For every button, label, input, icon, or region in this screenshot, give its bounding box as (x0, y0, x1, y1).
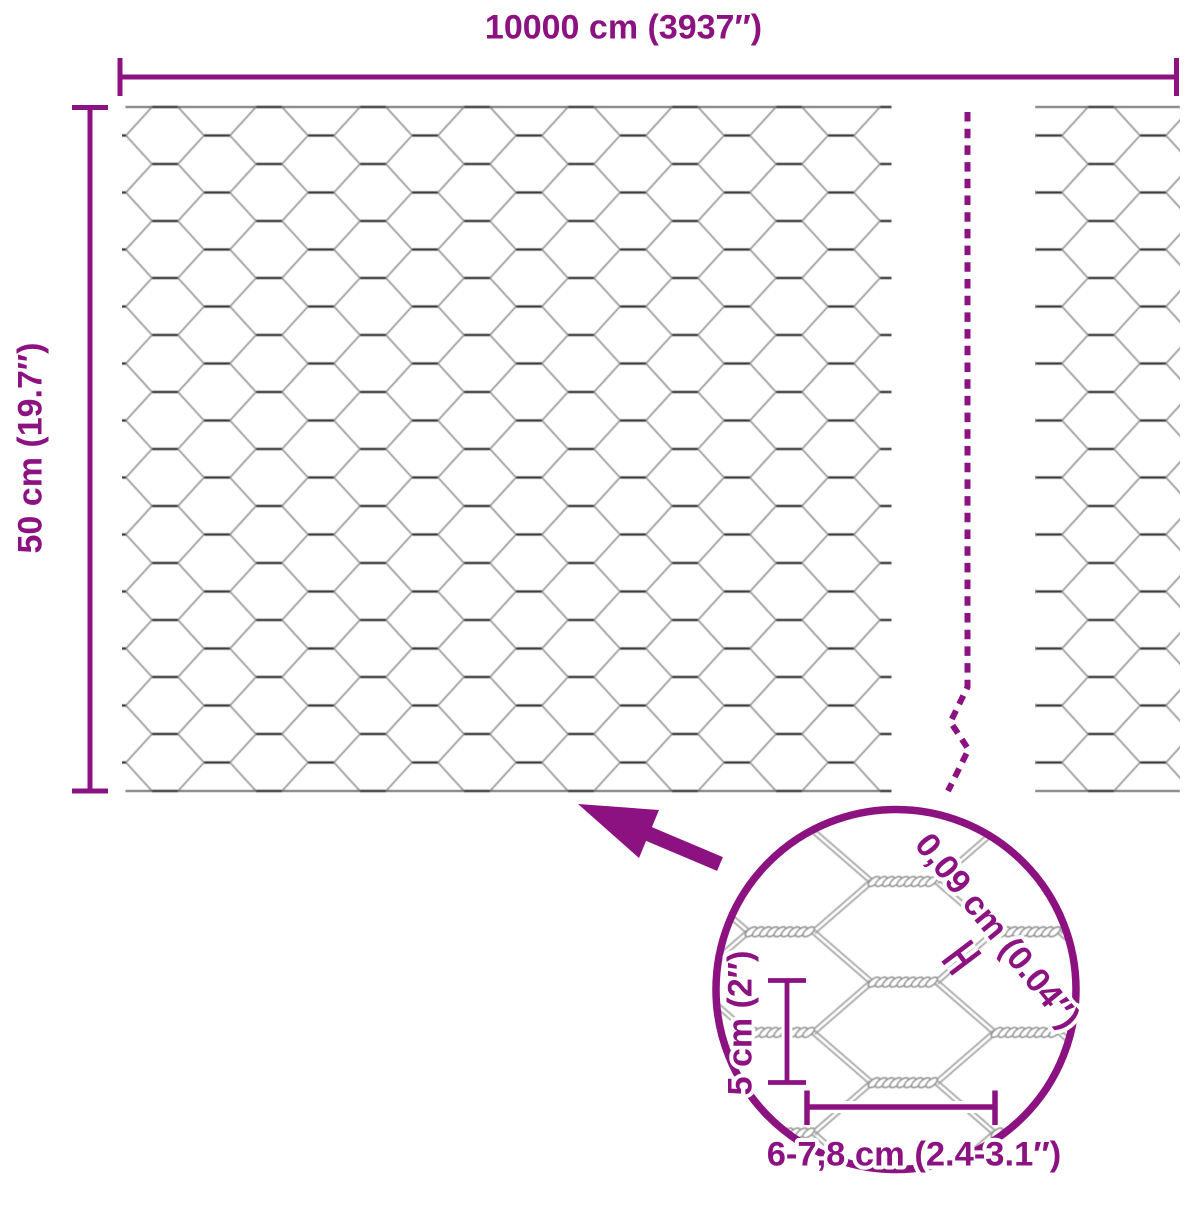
svg-text:10000 cm (3937″): 10000 cm (3937″) (485, 9, 762, 47)
svg-text:6-7,8 cm (2.4-3.1″): 6-7,8 cm (2.4-3.1″) (767, 1136, 1062, 1174)
svg-text:5 cm (2″): 5 cm (2″) (722, 951, 760, 1096)
svg-text:50 cm (19.7″): 50 cm (19.7″) (12, 343, 50, 554)
